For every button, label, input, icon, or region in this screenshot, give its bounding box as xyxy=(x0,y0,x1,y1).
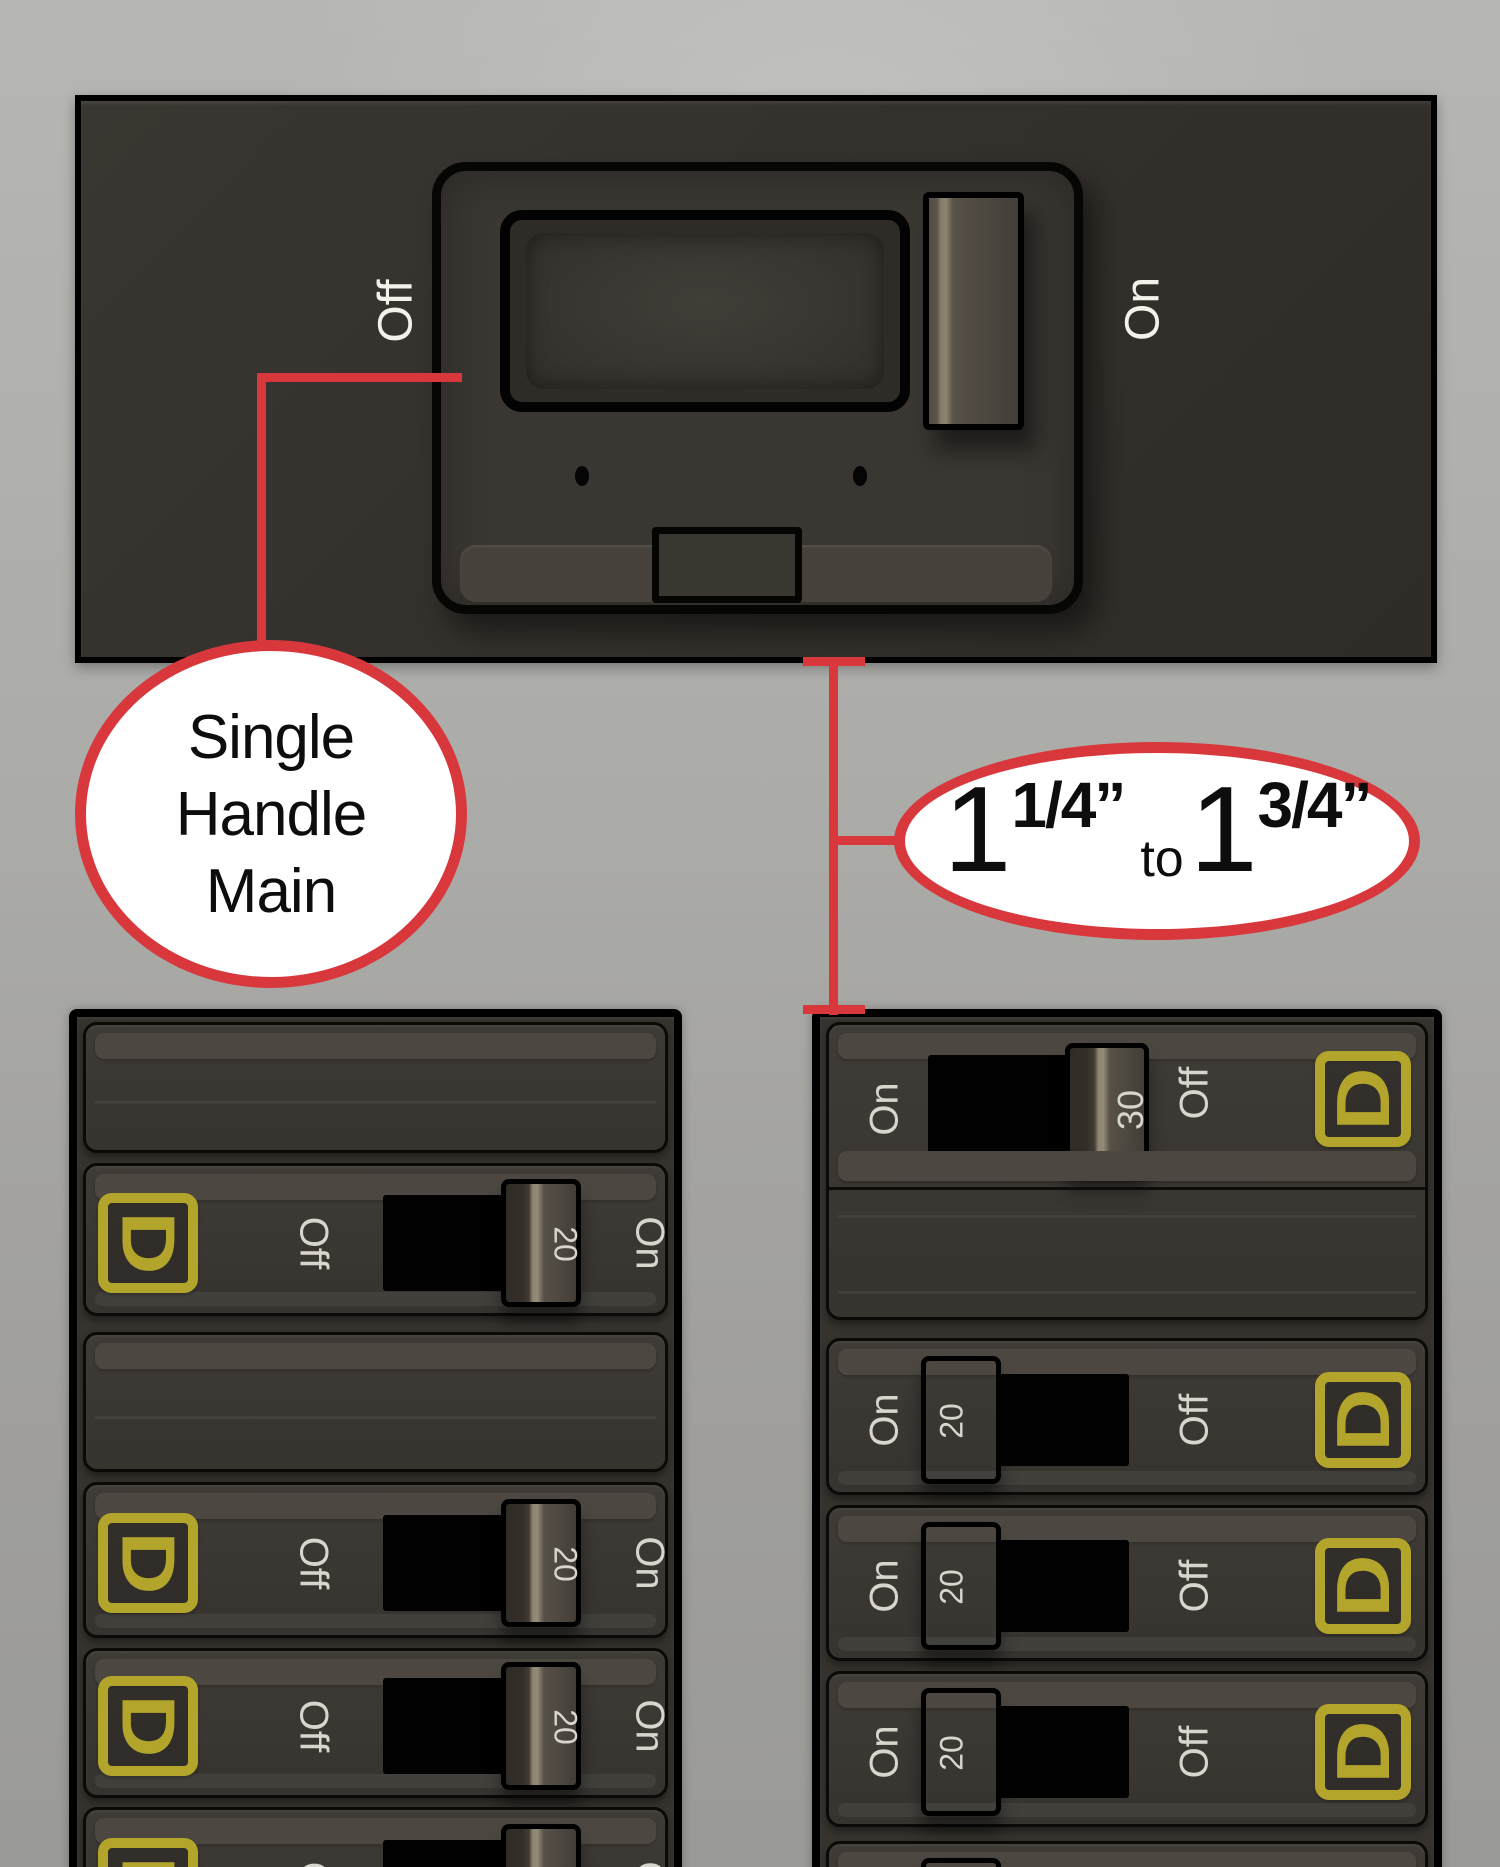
breaker-switch-handle[interactable]: 20 xyxy=(921,1522,1001,1650)
callout-text-line: Main xyxy=(206,853,336,930)
breaker-amp-label: 20 xyxy=(547,1226,584,1262)
switch-recess xyxy=(928,1055,1073,1163)
breaker-row: On20OffD xyxy=(826,1671,1428,1827)
size-fraction: 3/4” xyxy=(1258,775,1371,835)
breaker-on-label: On xyxy=(863,1393,908,1446)
callout-single-handle-main: Single Handle Main xyxy=(75,640,467,988)
square-d-logo-icon: D xyxy=(98,1676,198,1776)
breaker-row: DOff20On xyxy=(83,1648,668,1798)
callout-text-line: Handle xyxy=(176,776,366,853)
switch-recess xyxy=(383,1678,503,1774)
switch-recess xyxy=(996,1706,1129,1798)
square-d-logo-icon: D xyxy=(98,1193,198,1293)
square-d-letter: D xyxy=(110,1856,186,1867)
main-off-label: Off xyxy=(369,279,424,342)
breaker-on-label: On xyxy=(627,1861,672,1867)
breaker-on-label: On xyxy=(627,1536,672,1589)
breaker-off-label: Off xyxy=(291,1862,336,1867)
left-breaker-column: DOff20OnDOff20OnDOff20OnDOff20On xyxy=(69,1009,682,1867)
breaker-switch-handle[interactable]: 20 xyxy=(921,1688,1001,1816)
square-d-logo-icon: D xyxy=(1315,1051,1411,1147)
square-d-logo-icon: D xyxy=(1315,1704,1411,1800)
switch-recess xyxy=(383,1195,503,1291)
breaker-switch-handle[interactable]: 20 xyxy=(501,1824,581,1867)
breaker-off-label: Off xyxy=(291,1700,336,1753)
square-d-logo-icon: D xyxy=(1315,1372,1411,1468)
square-d-letter: D xyxy=(1325,1067,1401,1130)
right-breaker-column: On30OffDOn20OffDOn20OffDOn20OffDOn20OffD xyxy=(812,1009,1442,1867)
square-d-logo-icon: D xyxy=(1315,1538,1411,1634)
square-d-letter: D xyxy=(110,1531,186,1594)
size-number: 1 xyxy=(1190,773,1258,885)
breaker-switch-handle[interactable]: 20 xyxy=(921,1356,1001,1484)
square-d-letter: D xyxy=(1325,1388,1401,1451)
breaker-off-label: Off xyxy=(1173,1726,1218,1779)
breaker-row: On20OffD xyxy=(826,1505,1428,1661)
main-breaker-handle[interactable] xyxy=(923,192,1024,430)
breaker-amp-label: 20 xyxy=(934,1735,971,1771)
row-highlight-line xyxy=(95,1101,656,1104)
breaker-amp-label: 20 xyxy=(934,1569,971,1605)
callout-line-vertical xyxy=(257,373,266,651)
square-d-letter: D xyxy=(110,1694,186,1757)
screw-icon xyxy=(575,466,589,486)
switch-recess xyxy=(383,1840,503,1867)
breaker-amp-label: 20 xyxy=(547,1546,584,1582)
breaker-switch-handle[interactable]: 20 xyxy=(501,1179,581,1307)
breaker-switch-handle[interactable]: 20 xyxy=(921,1858,1001,1867)
square-d-letter: D xyxy=(1325,1554,1401,1617)
callout-text-line: Single xyxy=(188,699,354,776)
breaker-row: DOff20On xyxy=(83,1163,668,1316)
breaker-amp-label: 20 xyxy=(934,1403,971,1439)
cover-plate-row xyxy=(83,1022,668,1153)
size-number: 1 xyxy=(943,773,1011,885)
callout-line-horizontal xyxy=(257,373,462,382)
square-d-letter: D xyxy=(110,1211,186,1274)
screw-icon xyxy=(853,466,867,486)
switch-recess xyxy=(996,1374,1129,1466)
breaker-on-label: On xyxy=(627,1216,672,1269)
switch-recess xyxy=(996,1540,1129,1632)
breaker-row: On20OffD xyxy=(826,1841,1428,1867)
row-highlight-strip xyxy=(838,1151,1416,1181)
breaker-switch-handle[interactable]: 20 xyxy=(501,1662,581,1790)
breaker-switch-handle[interactable]: 20 xyxy=(501,1499,581,1627)
square-d-logo-icon: D xyxy=(98,1513,198,1613)
square-d-letter: D xyxy=(1325,1720,1401,1783)
dimension-cap-bottom xyxy=(803,1005,865,1014)
breaker-amp-label: 20 xyxy=(547,1709,584,1745)
main-on-label: On xyxy=(1116,277,1171,341)
dimension-branch xyxy=(833,836,897,845)
row-highlight-line xyxy=(838,1291,1416,1294)
breaker-row: On20OffD xyxy=(826,1338,1428,1495)
callout-size-range: 1 1/4” to 1 3/4” xyxy=(894,742,1420,940)
breaker-diagram: Off On Single Handle Main 1 1/4” to 1 3/… xyxy=(0,0,1500,1867)
row-highlight-line xyxy=(838,1215,1416,1218)
main-breaker-tab xyxy=(652,527,802,603)
breaker-section-divider xyxy=(829,1187,1425,1190)
breaker-on-label: On xyxy=(863,1559,908,1612)
cover-plate-row xyxy=(83,1332,668,1472)
breaker-on-label: On xyxy=(863,1082,908,1135)
breaker-off-label: Off xyxy=(1173,1067,1218,1120)
square-d-logo-icon: D xyxy=(98,1838,198,1867)
breaker-row: DOff20On xyxy=(83,1482,668,1638)
breaker-amp-label: 30 xyxy=(1110,1090,1152,1130)
breaker-row: DOff20On xyxy=(83,1807,668,1867)
breaker-off-label: Off xyxy=(1173,1393,1218,1446)
breaker-off-label: Off xyxy=(291,1537,336,1590)
breaker-off-label: Off xyxy=(291,1216,336,1269)
main-switch-recess xyxy=(526,233,884,389)
breaker-on-label: On xyxy=(627,1699,672,1752)
row-highlight-strip xyxy=(95,1343,656,1369)
size-to: to xyxy=(1140,833,1183,885)
breaker-on-label: On xyxy=(863,1725,908,1778)
switch-recess xyxy=(383,1515,503,1611)
row-highlight-strip xyxy=(95,1033,656,1059)
breaker-row: On30OffD xyxy=(826,1022,1428,1320)
row-highlight-line xyxy=(95,1416,656,1419)
breaker-off-label: Off xyxy=(1173,1560,1218,1613)
size-fraction: 1/4” xyxy=(1011,775,1124,835)
